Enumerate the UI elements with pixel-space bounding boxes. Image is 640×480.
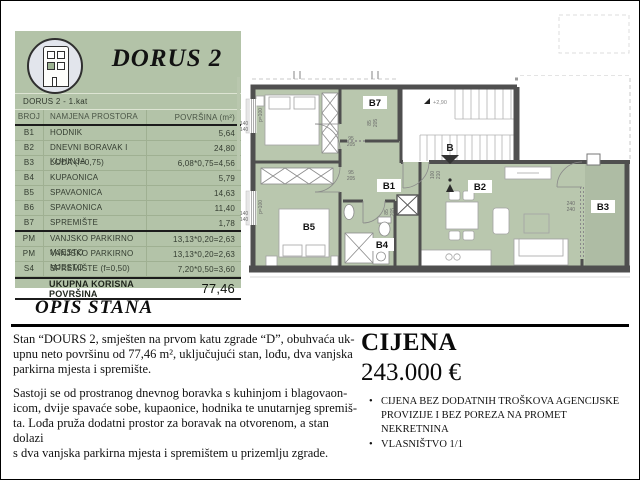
building-shape <box>43 46 69 87</box>
col-namjena: NAMJENA PROSTORA <box>44 110 147 124</box>
total-label: UKUPNA KORISNA POVRŠINA <box>15 279 147 299</box>
col-broj: BROJ <box>15 110 44 124</box>
description-paragraph: Sastoji se od prostranog dnevnog boravka… <box>13 386 357 461</box>
price-value: 243.000 € <box>361 359 461 387</box>
wardrobe-b6 <box>322 93 338 153</box>
logo-window-green <box>47 62 55 70</box>
loggia-floor <box>585 162 627 269</box>
row-name: SPREMIŠTE <box>44 216 147 230</box>
row-name: KUPAONICA <box>44 171 147 185</box>
row-area: 5,64 <box>147 129 241 138</box>
row-id: B6 <box>15 201 44 215</box>
table-header: BROJ NAMJENA PROSTORA POVRŠINA (m²) <box>15 110 241 126</box>
bed-b6 <box>256 95 319 145</box>
row-id: S4 <box>15 262 44 276</box>
col-povrsina: POVRŠINA (m²) <box>147 113 241 122</box>
price-note: VLASNIŠTVO 1/1 <box>367 438 633 452</box>
row-name: VANJSKO PARKIRNO MJESTO <box>44 247 147 261</box>
total-value: 77,46 <box>147 281 241 296</box>
svg-text:p=100: p=100 <box>258 200 264 214</box>
loggia-window-box <box>587 154 600 165</box>
svg-text:210: 210 <box>436 171 442 180</box>
row-area: 13,13*0,20=2,63 <box>147 235 241 244</box>
hallway-closet <box>397 195 418 215</box>
row-area: 1,78 <box>147 219 241 228</box>
room-label-b4: B4 <box>376 240 389 251</box>
level-label: +2,90 <box>433 100 447 106</box>
wardrobe-b5 <box>261 168 333 184</box>
svg-text:205: 205 <box>373 119 379 128</box>
adjacent-unit-area <box>518 76 629 161</box>
price-note: CIJENA BEZ DODATNIH TROŠKOVA AGENCIJSKE … <box>367 395 633 437</box>
table-row: B3 LOĐA (f=0,75) 6,08*0,75=4,56 <box>15 156 241 171</box>
price-title: CIJENA <box>361 329 457 357</box>
table-row: B4 KUPAONICA 5,79 <box>15 171 241 186</box>
wall-stubs <box>294 71 549 79</box>
row-name: HODNIK <box>44 126 147 140</box>
row-area: 14,63 <box>147 189 241 198</box>
row-id: B1 <box>15 126 44 140</box>
svg-text:240: 240 <box>567 207 576 213</box>
table-row: B6 SPAVAONICA 11,40 <box>15 201 241 216</box>
stairwell-area <box>401 87 515 162</box>
svg-text:140: 140 <box>240 127 249 133</box>
svg-text:205: 205 <box>347 176 356 182</box>
room-label-b5: B5 <box>303 222 316 233</box>
table-row: S4 SPREMIŠTE (f=0,50) 7,20*0,50=3,60 <box>15 262 241 277</box>
description-paragraph: Stan “DOURS 2, smješten na prvom katu zg… <box>13 332 357 377</box>
price-notes: CIJENA BEZ DODATNIH TROŠKOVA AGENCIJSKE … <box>367 395 633 453</box>
row-name: DNEVNI BORAVAK I KUHINJA <box>44 141 147 155</box>
row-id: B4 <box>15 171 44 185</box>
logo-door <box>52 77 57 86</box>
room-label-b2: B2 <box>474 182 486 193</box>
row-id: B2 <box>15 141 44 155</box>
table-row: B1 HODNIK 5,64 <box>15 126 241 141</box>
stair-marker-label: B <box>446 143 453 154</box>
table-row: B5 SPAVAONICA 14,63 <box>15 186 241 201</box>
row-name: SPAVAONICA <box>44 186 147 200</box>
row-area: 13,13*0,20=2,63 <box>147 250 241 259</box>
table-row: PM VANJSKO PARKIRNO MJESTO 13,13*0,20=2,… <box>15 230 241 247</box>
row-id: B5 <box>15 186 44 200</box>
panel-header: DORUS 2 <box>15 31 241 93</box>
logo-window <box>57 51 65 59</box>
info-panel: DORUS 2 DORUS 2 - 1.kat BROJ NAMJENA PRO… <box>15 31 241 288</box>
row-id: B7 <box>15 216 44 230</box>
row-area: 11,40 <box>147 204 241 213</box>
flyer-page: DORUS 2 DORUS 2 - 1.kat BROJ NAMJENA PRO… <box>0 0 640 480</box>
table-row: B2 DNEVNI BORAVAK I KUHINJA 24,80 <box>15 141 241 156</box>
floor-plan: B +2,90 B7 B1 B2 B3 B5 B4 95 205 95 205 … <box>237 9 637 296</box>
table-row: B7 SPREMIŠTE 1,78 <box>15 216 241 231</box>
floor-subtitle: DORUS 2 - 1.kat <box>15 93 241 110</box>
building-logo-icon <box>27 38 83 94</box>
svg-text:p=100: p=100 <box>258 108 264 122</box>
logo-window <box>47 51 55 59</box>
room-label-b3: B3 <box>597 202 609 213</box>
row-id: PM <box>15 247 44 261</box>
svg-text:205: 205 <box>347 142 356 148</box>
room-label-b1: B1 <box>383 181 396 192</box>
row-area: 7,20*0,50=3,60 <box>147 265 241 274</box>
row-id: PM <box>15 232 44 246</box>
row-area: 24,80 <box>147 144 241 153</box>
project-title: DORUS 2 <box>97 45 237 73</box>
logo-window <box>57 62 65 70</box>
svg-text:205: 205 <box>390 208 396 217</box>
row-name: VANJSKO PARKIRNO MJESTO <box>44 232 147 246</box>
row-area: 6,08*0,75=4,56 <box>147 159 241 168</box>
row-area: 5,79 <box>147 174 241 183</box>
row-id: B3 <box>15 156 44 170</box>
row-name: SPREMIŠTE (f=0,50) <box>44 262 147 276</box>
row-name: SPAVAONICA <box>44 201 147 215</box>
room-label-b7: B7 <box>369 98 381 109</box>
description-title: OPIS STANA <box>35 297 153 319</box>
divider-rule <box>11 324 629 327</box>
svg-text:140: 140 <box>240 217 249 223</box>
table-row: PM VANJSKO PARKIRNO MJESTO 13,13*0,20=2,… <box>15 247 241 262</box>
row-name: LOĐA (f=0,75) <box>44 156 147 170</box>
